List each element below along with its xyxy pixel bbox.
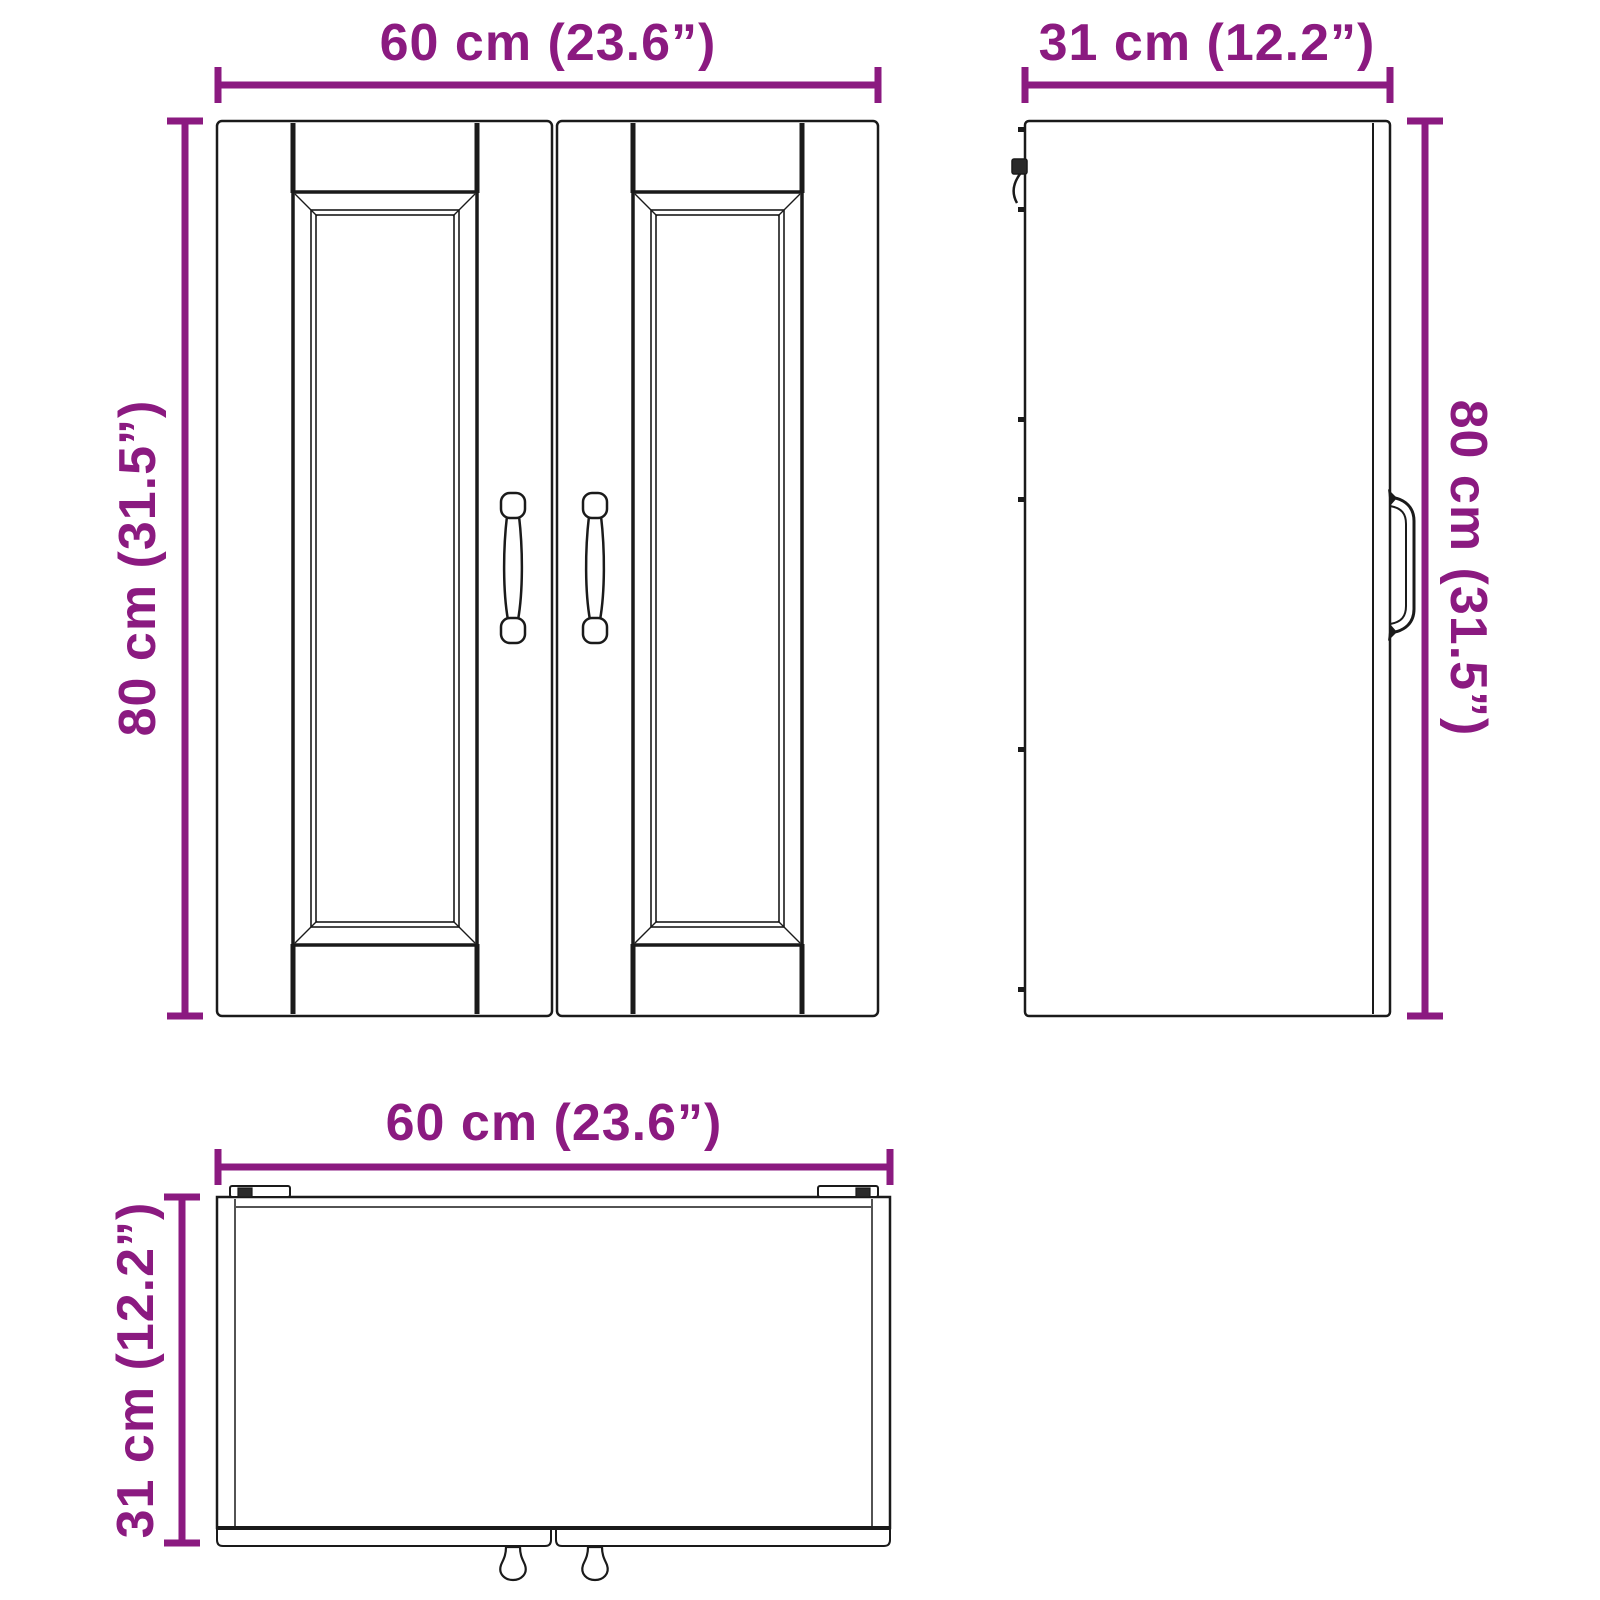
- top-view: 60 cm (23.6”) 31 cm (12.2”): [107, 1094, 890, 1580]
- door-stile-edges: [633, 123, 802, 1014]
- side-cabinet-drawing: [1012, 121, 1414, 1016]
- top-depth-dimension-label: 31 cm (12.2”): [107, 1202, 165, 1539]
- front-view: 60 cm (23.6”) 80 cm (31.5”): [109, 14, 878, 1016]
- panel-bevel-frame: [651, 210, 784, 927]
- front-cabinet-drawing: [217, 121, 878, 1016]
- panel-corner-miters: [295, 194, 475, 943]
- knob-profile-left: [500, 1547, 525, 1580]
- handle-inner-profile: [1390, 506, 1406, 624]
- pin-nub: [1018, 417, 1026, 422]
- front-width-dimension: 60 cm (23.6”): [218, 14, 878, 103]
- door-front-right: [556, 1528, 890, 1546]
- mounting-bracket-right: [818, 1186, 878, 1197]
- front-height-dimension-label: 80 cm (31.5”): [109, 400, 167, 737]
- side-depth-dimension-label: 31 cm (12.2”): [1039, 14, 1376, 72]
- knob-profile-right: [582, 1547, 607, 1580]
- carcass-outline: [217, 1197, 890, 1528]
- door-handle-left: [501, 493, 525, 643]
- pin-nub: [1018, 207, 1026, 212]
- panel-outer-frame: [293, 192, 477, 945]
- top-cabinet-drawing: [217, 1186, 890, 1580]
- bracket-block: [238, 1188, 252, 1197]
- door-outline: [557, 121, 878, 1016]
- handle-bow: [504, 516, 522, 620]
- door-panel: [633, 192, 802, 945]
- side-height-dimension-label: 80 cm (31.5”): [1439, 400, 1497, 737]
- top-width-dimension-label: 60 cm (23.6”): [386, 1094, 723, 1152]
- side-door-handle: [1388, 489, 1414, 641]
- door-front-strip: [217, 1528, 890, 1546]
- front-height-dimension: 80 cm (31.5”): [109, 121, 203, 1016]
- handle-top-knob: [501, 493, 525, 518]
- panel-inner-frame: [656, 215, 779, 922]
- panel-outer-frame: [633, 192, 802, 945]
- bracket-block: [856, 1188, 870, 1197]
- top-width-dimension: 60 cm (23.6”): [218, 1094, 890, 1185]
- door-stile-edges: [293, 123, 477, 1014]
- side-view: 31 cm (12.2”) 80 cm (31.5”): [1012, 14, 1497, 1016]
- hinge-arm: [1014, 174, 1020, 203]
- handle-top-knob: [583, 493, 607, 518]
- top-depth-dimension: 31 cm (12.2”): [107, 1197, 200, 1543]
- pin-nub: [1018, 987, 1026, 992]
- top-view-knobs: [500, 1547, 607, 1580]
- handle-bow: [586, 516, 604, 620]
- diagram-svg: 60 cm (23.6”) 80 cm (31.5”): [0, 0, 1600, 1600]
- side-depth-dimension: 31 cm (12.2”): [1025, 14, 1390, 103]
- door-panel: [293, 192, 477, 945]
- carcass-wall-lines: [235, 1199, 872, 1526]
- panel-bevel-frame: [311, 210, 459, 927]
- door-handle-right: [583, 493, 607, 643]
- panel-corner-miters: [635, 194, 800, 943]
- dimension-diagram: 60 cm (23.6”) 80 cm (31.5”): [0, 0, 1600, 1600]
- hinge-block: [1012, 159, 1027, 174]
- cabinet-door-right: [557, 121, 878, 1016]
- handle-bottom-knob: [583, 618, 607, 643]
- handle-outer-profile: [1390, 497, 1414, 633]
- cabinet-door-left: [217, 121, 552, 1016]
- mounting-bracket-left: [230, 1186, 290, 1197]
- side-height-dimension: 80 cm (31.5”): [1407, 121, 1497, 1016]
- pin-nub: [1018, 747, 1026, 752]
- side-body-outline: [1025, 121, 1390, 1016]
- pin-nub: [1018, 127, 1026, 132]
- front-width-dimension-label: 60 cm (23.6”): [380, 14, 717, 72]
- panel-inner-frame: [316, 215, 454, 922]
- handle-bottom-knob: [501, 618, 525, 643]
- door-outline: [217, 121, 552, 1016]
- door-front-left: [217, 1528, 551, 1546]
- pin-nub: [1018, 497, 1026, 502]
